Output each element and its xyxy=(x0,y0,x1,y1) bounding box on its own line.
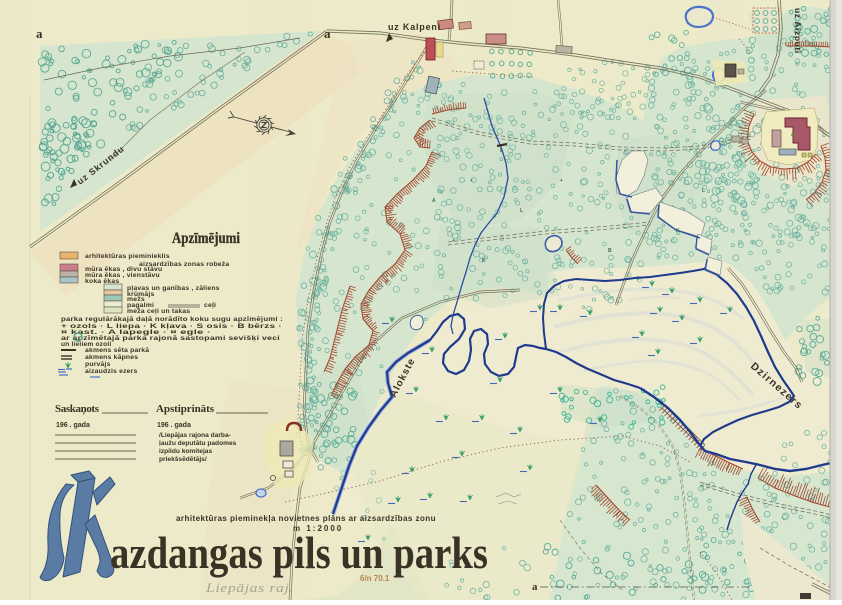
svg-text:koka ēkas: koka ēkas xyxy=(85,278,119,285)
svg-text:a: a xyxy=(324,26,331,41)
svg-text:meža ceļi un takas: meža ceļi un takas xyxy=(127,308,190,315)
svg-text:aizaudzis ezers: aizaudzis ezers xyxy=(85,368,138,375)
svg-text:a: a xyxy=(36,26,43,41)
svg-text:Liepājas raj.: Liepājas raj. xyxy=(205,580,294,595)
svg-text:priekšsēdētājs/: priekšsēdētājs/ xyxy=(159,456,207,463)
svg-text:a: a xyxy=(532,581,538,593)
svg-text:arhitektūras pieminekļa noviet: arhitektūras pieminekļa novietnes plāns … xyxy=(176,514,436,523)
svg-text:K: K xyxy=(482,258,486,264)
svg-text:uz Kalpeni: uz Kalpeni xyxy=(388,22,441,32)
svg-text:L: L xyxy=(500,148,503,154)
svg-text:parka regulārākajā daļā norādī: parka regulārākajā daļā norādīto koku su… xyxy=(61,316,283,323)
svg-text:+: + xyxy=(452,238,455,244)
svg-text:Saskaņots: Saskaņots xyxy=(55,403,100,415)
svg-text:Apstiprināts: Apstiprināts xyxy=(156,403,215,415)
svg-text:akmens sēta parkā: akmens sēta parkā xyxy=(85,347,149,354)
svg-text:ļaužu deputātu padomes: ļaužu deputātu padomes xyxy=(159,440,237,447)
svg-text:+: + xyxy=(470,178,473,184)
svg-text:196 . gada: 196 . gada xyxy=(157,422,191,429)
svg-text:azdangas pils un parks: azdangas pils un parks xyxy=(110,527,488,578)
svg-text:K: K xyxy=(676,228,680,234)
svg-text:Apzīmējumi: Apzīmējumi xyxy=(172,230,240,247)
svg-text:akmens kāpnes: akmens kāpnes xyxy=(85,354,138,361)
svg-text:196 . gada: 196 . gada xyxy=(56,422,90,429)
svg-text:A: A xyxy=(432,198,436,204)
svg-text:L: L xyxy=(520,208,523,214)
svg-text:B: B xyxy=(608,248,612,254)
svg-text:6/n 70.1: 6/n 70.1 xyxy=(360,574,390,583)
svg-text:arhitektūras pieminieklis: arhitektūras pieminieklis xyxy=(85,253,170,260)
svg-text:purvājs: purvājs xyxy=(85,361,111,368)
svg-text:ceļi: ceļi xyxy=(204,302,216,309)
svg-text:izpildu komitejas: izpildu komitejas xyxy=(159,448,212,455)
svg-text:/Liepājas rajona darba-: /Liepājas rajona darba- xyxy=(159,432,231,439)
svg-text:uz Aizputi: uz Aizputi xyxy=(793,8,803,54)
svg-text:+: + xyxy=(560,178,563,184)
svg-text:L: L xyxy=(702,188,705,194)
